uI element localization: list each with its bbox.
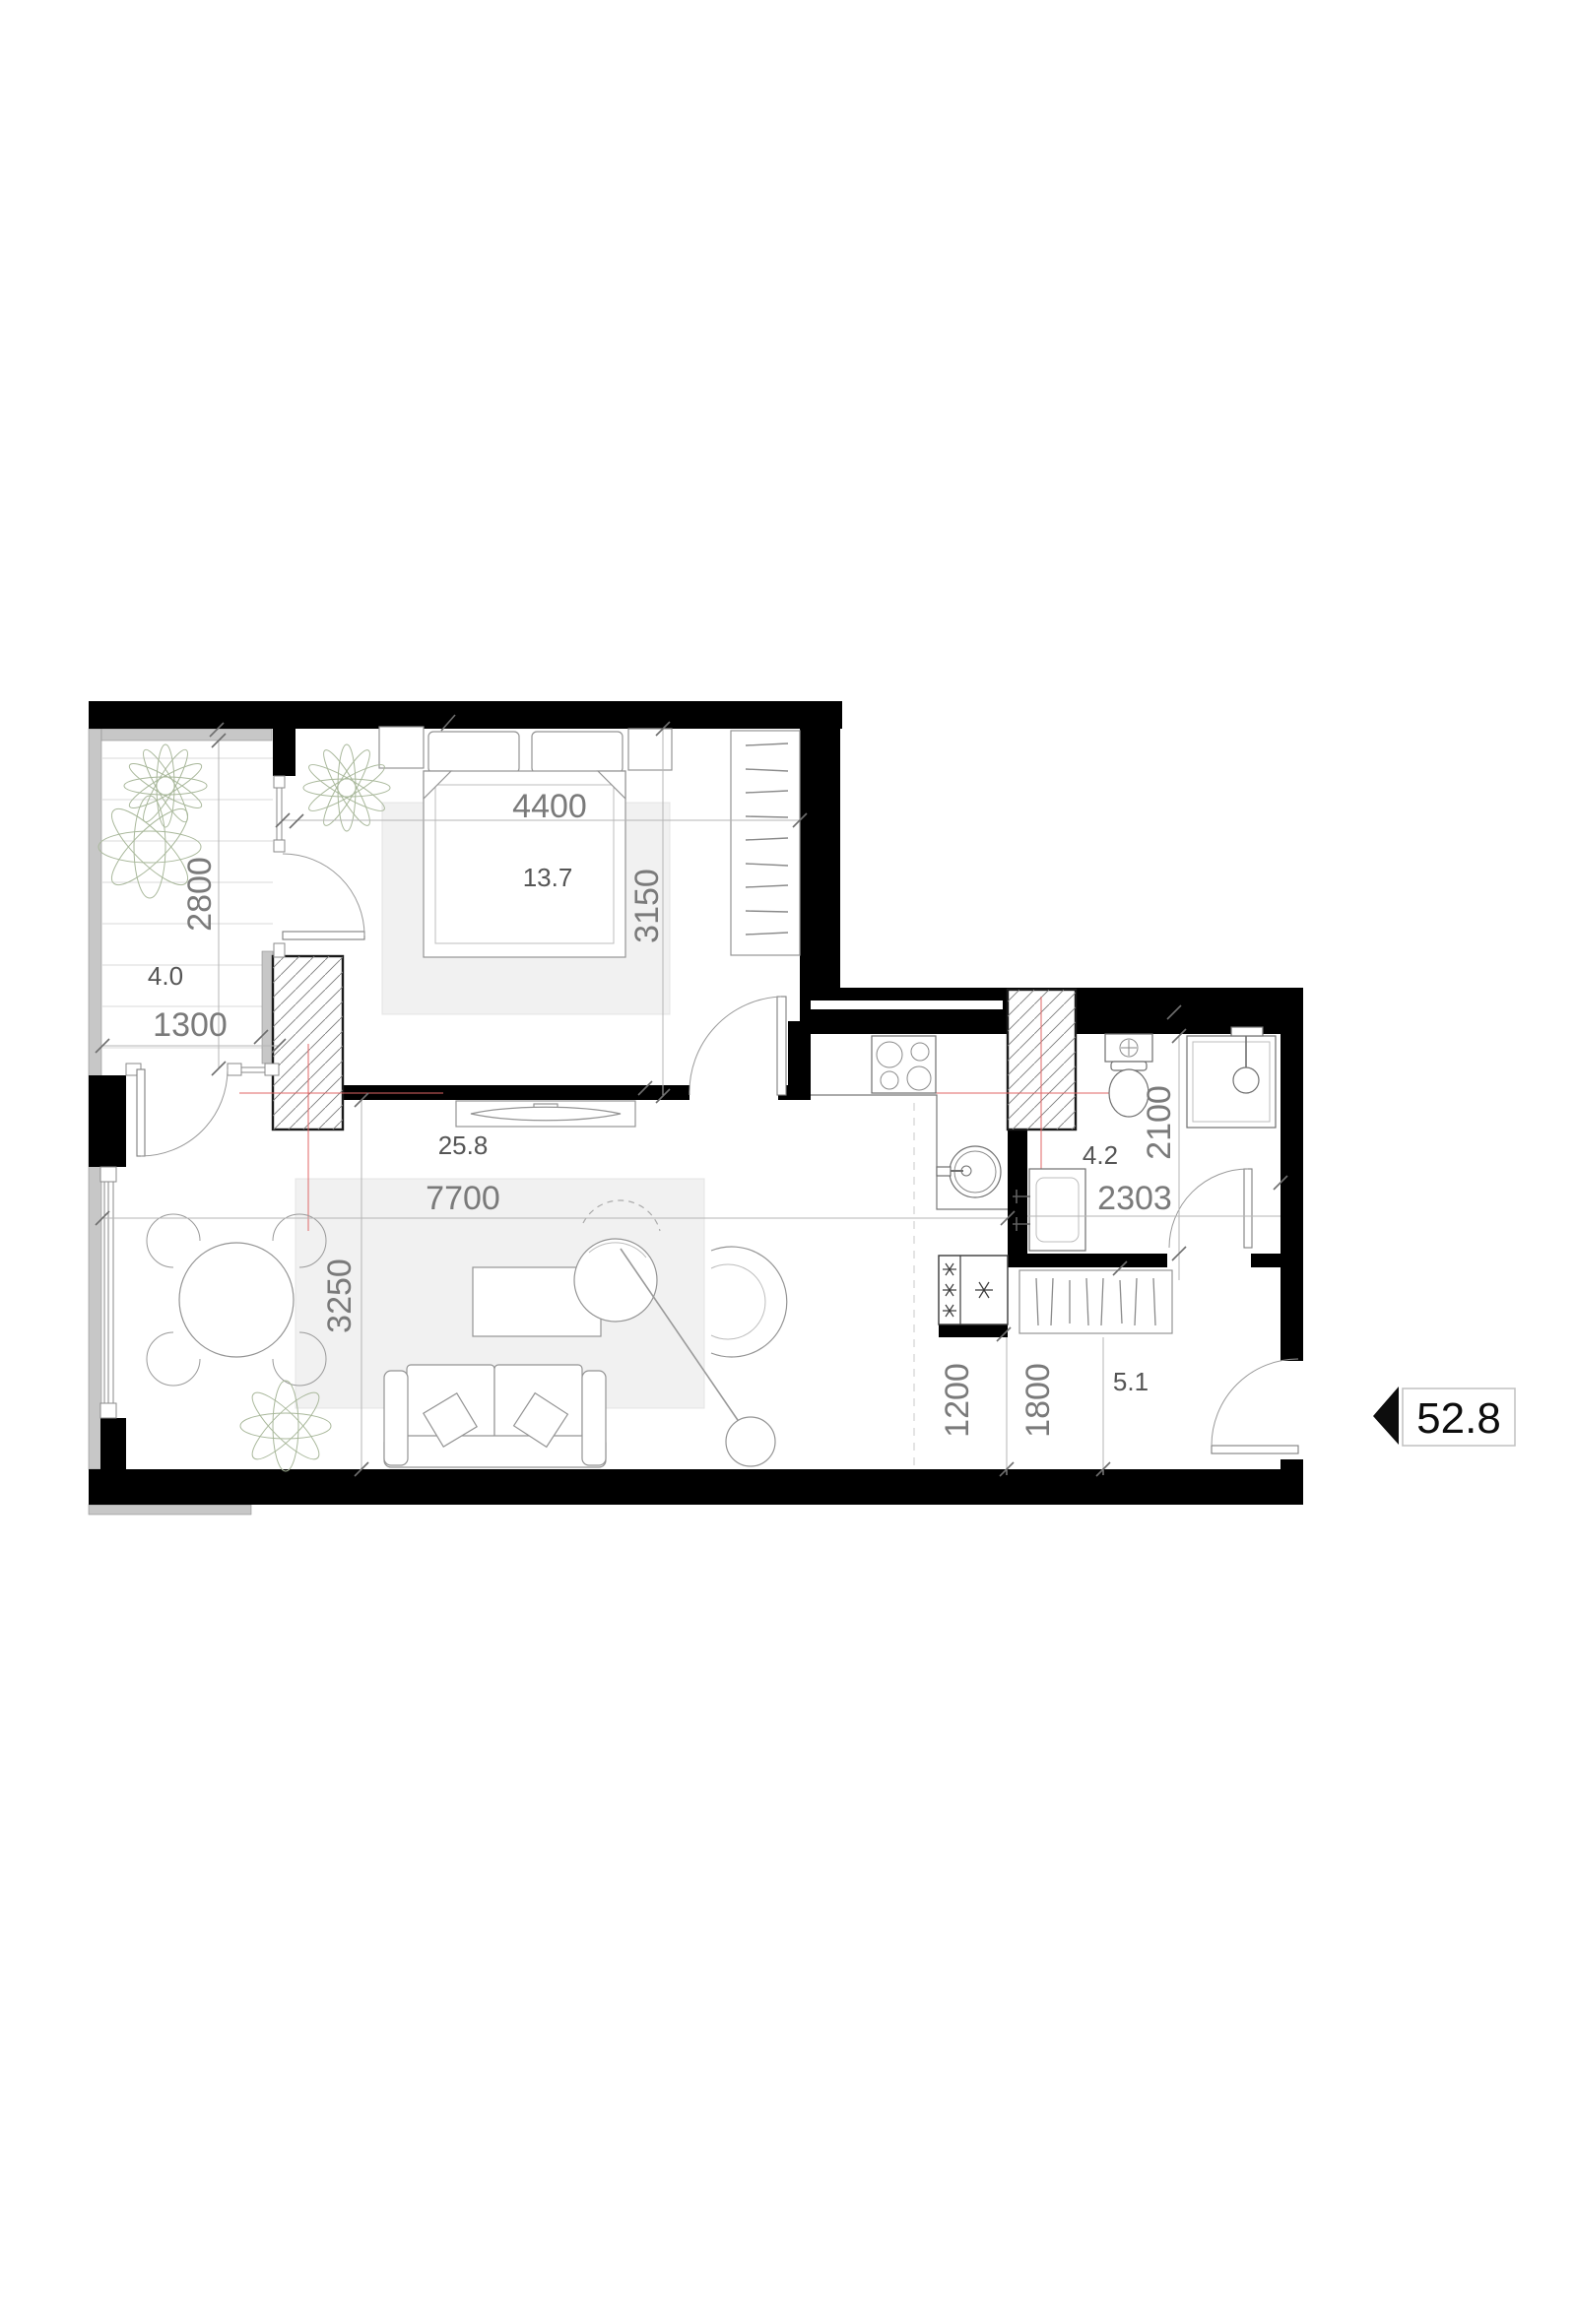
entry-arrow-icon bbox=[1373, 1387, 1399, 1445]
chair bbox=[147, 1214, 200, 1267]
dim-living-width: 7700 bbox=[426, 1180, 500, 1217]
balcony-partition-window bbox=[274, 776, 285, 957]
kitchen-sink bbox=[937, 1146, 1001, 1197]
nightstand-left bbox=[379, 727, 424, 768]
dining-table bbox=[179, 1243, 294, 1357]
dim-balcony-width: 1300 bbox=[153, 1006, 228, 1044]
hall-wardrobe bbox=[1019, 1270, 1172, 1333]
stove bbox=[872, 1036, 936, 1093]
dim-hall-a: 1200 bbox=[939, 1363, 976, 1438]
total-area-badge: 52.8 bbox=[1373, 1387, 1515, 1446]
door-entry bbox=[1212, 1359, 1298, 1453]
balcony-south-window bbox=[126, 1064, 279, 1075]
plant-living-room bbox=[240, 1381, 331, 1471]
armchair bbox=[711, 1247, 787, 1357]
door-bathroom bbox=[1169, 1169, 1252, 1248]
area-hallway: 5.1 bbox=[1113, 1367, 1149, 1396]
door-balcony-to-living bbox=[137, 1069, 228, 1156]
door-bedroom bbox=[689, 997, 786, 1095]
area-bedroom: 13.7 bbox=[523, 863, 573, 892]
nightstand-right bbox=[628, 729, 672, 770]
door-balcony-to-bedroom bbox=[283, 854, 364, 939]
dim-bathroom-depth: 2100 bbox=[1141, 1085, 1178, 1160]
pillow-right bbox=[532, 732, 623, 773]
dim-balcony-depth: 2800 bbox=[181, 857, 219, 932]
living-room-window bbox=[100, 1167, 116, 1418]
kitchen bbox=[811, 1036, 1008, 1469]
area-balcony: 4.0 bbox=[148, 961, 183, 991]
area-bathroom: 4.2 bbox=[1083, 1140, 1118, 1170]
total-area-value: 52.8 bbox=[1416, 1394, 1501, 1443]
dim-living-depth: 3250 bbox=[321, 1259, 359, 1333]
washing-machine bbox=[939, 1256, 1008, 1324]
tv-console bbox=[456, 1101, 635, 1127]
lounge-pouf bbox=[574, 1239, 657, 1322]
pillow-left bbox=[428, 732, 519, 773]
plant-bedroom bbox=[303, 744, 390, 831]
dim-bedroom-depth: 3150 bbox=[628, 869, 666, 943]
floor-plan-drawing: 4400 13.7 3150 2800 4.0 1300 25.8 7700 3… bbox=[0, 0, 1576, 2324]
dim-bedroom-width: 4400 bbox=[512, 788, 587, 825]
dim-hall-b: 1800 bbox=[1019, 1363, 1057, 1438]
sofa bbox=[384, 1365, 606, 1467]
bedroom-closet bbox=[731, 731, 800, 955]
chair bbox=[147, 1332, 200, 1386]
area-living-room: 25.8 bbox=[438, 1130, 489, 1160]
floor-plan-page: 4400 13.7 3150 2800 4.0 1300 25.8 7700 3… bbox=[0, 0, 1576, 2324]
dim-bathroom-width: 2303 bbox=[1097, 1180, 1172, 1217]
shower bbox=[1187, 1027, 1276, 1128]
